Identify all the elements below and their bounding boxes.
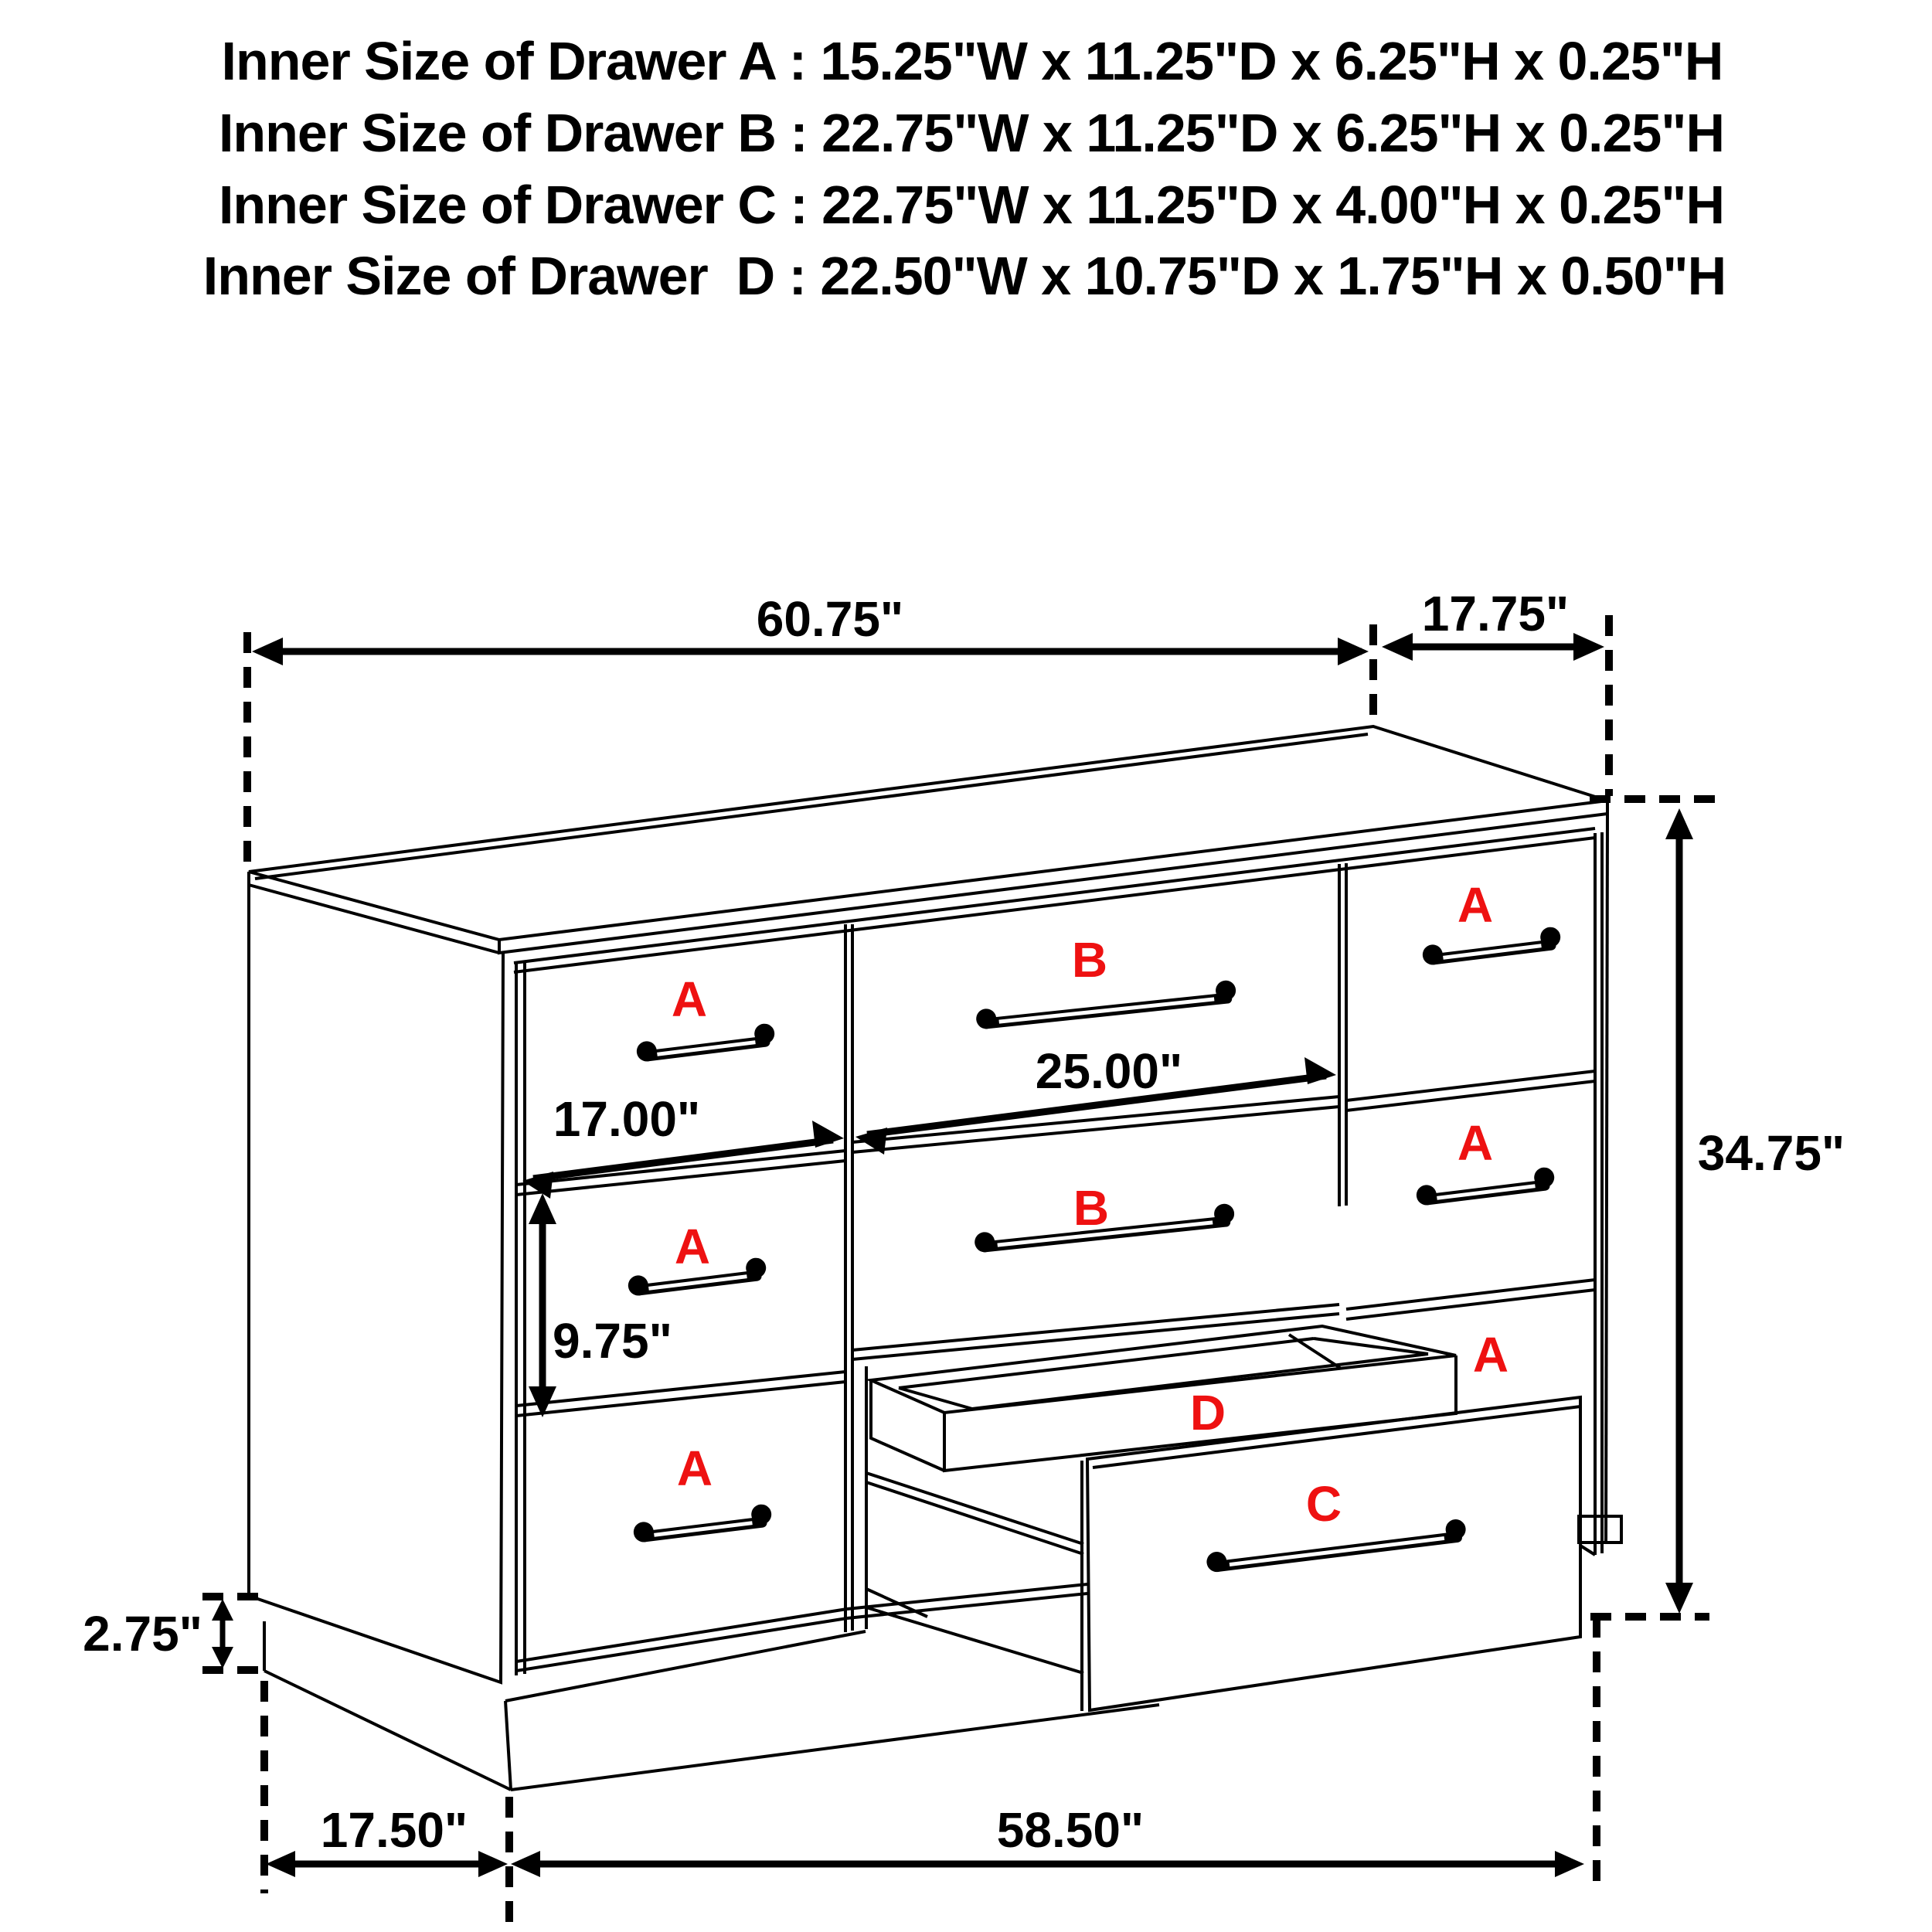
svg-text:60.75": 60.75" (757, 591, 904, 647)
svg-text:B: B (1072, 932, 1107, 988)
svg-text:Inner Size of Drawer B : 22.75: Inner Size of Drawer B : 22.75"W x 11.25… (219, 103, 1724, 163)
svg-text:C: C (1306, 1476, 1342, 1532)
svg-text:17.00": 17.00" (553, 1091, 701, 1147)
svg-text:17.50": 17.50" (321, 1802, 468, 1858)
svg-text:A: A (1458, 877, 1493, 933)
svg-text:Inner Size of Drawer D : 22.5: Inner Size of Drawer D : 22.50"W x 10.75… (203, 246, 1726, 306)
svg-text:58.50": 58.50" (997, 1802, 1145, 1858)
svg-text:Inner Size of Drawer A : 15.25: Inner Size of Drawer A : 15.25"W x 11.25… (222, 31, 1723, 91)
svg-text:34.75": 34.75" (1698, 1125, 1845, 1181)
svg-text:2.75": 2.75" (83, 1606, 202, 1662)
svg-text:A: A (1473, 1327, 1509, 1383)
svg-text:A: A (1458, 1115, 1493, 1171)
svg-text:D: D (1190, 1385, 1226, 1440)
svg-text:Inner Size of Drawer C : 22.75: Inner Size of Drawer C : 22.75"W x 11.25… (219, 175, 1724, 235)
svg-text:9.75": 9.75" (553, 1313, 672, 1369)
svg-text:17.75": 17.75" (1422, 586, 1570, 641)
svg-text:A: A (677, 1440, 713, 1496)
svg-text:25.00": 25.00" (1036, 1043, 1183, 1099)
svg-text:B: B (1073, 1180, 1109, 1236)
svg-text:A: A (672, 971, 707, 1027)
svg-text:A: A (675, 1219, 710, 1274)
